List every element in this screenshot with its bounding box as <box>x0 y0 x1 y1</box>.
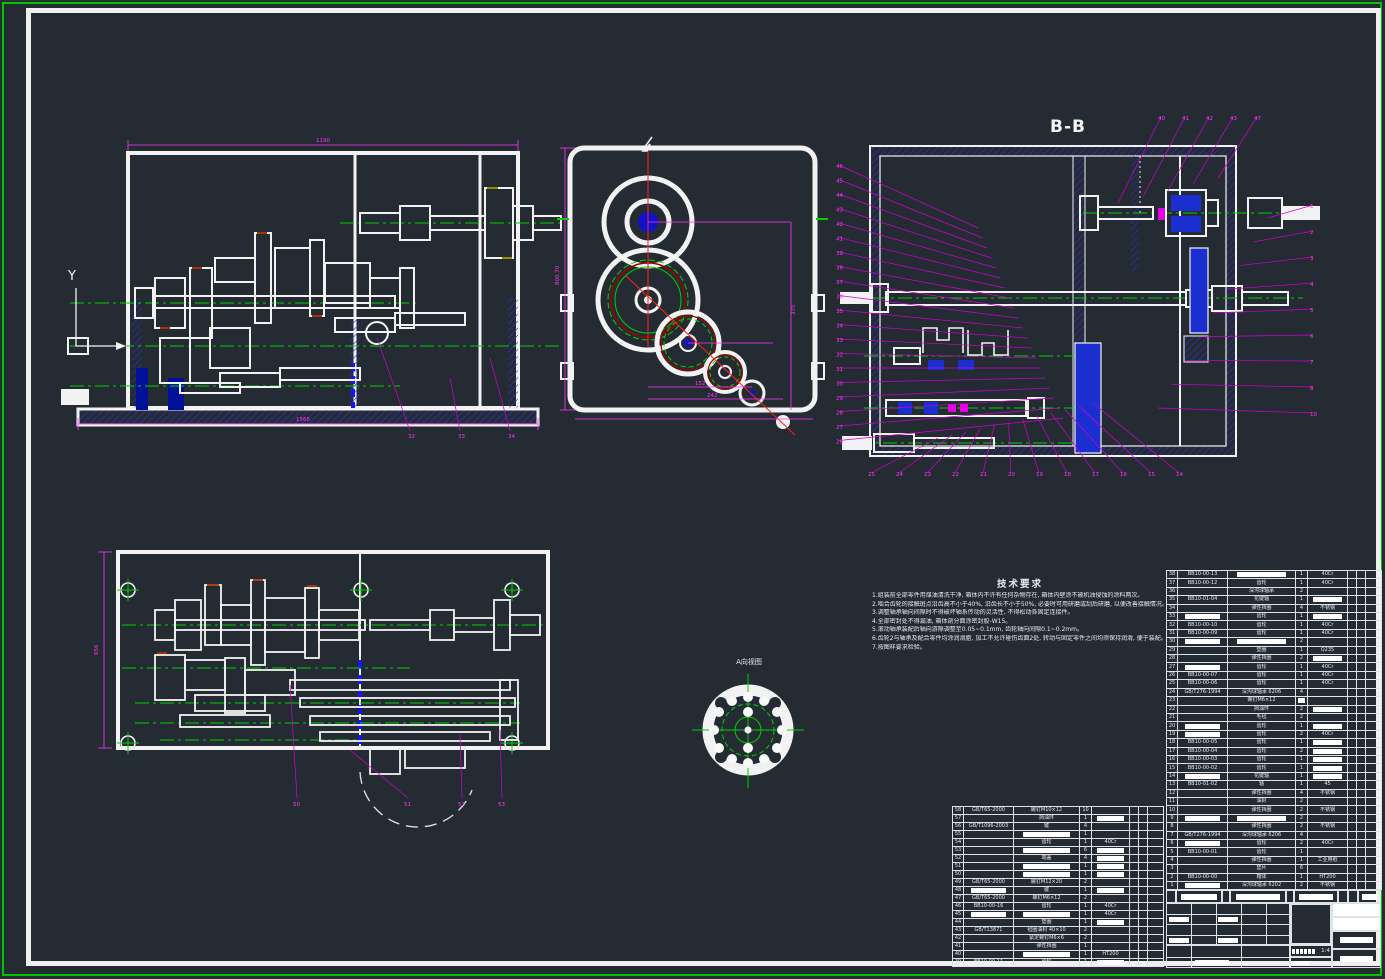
bom-material-cell <box>1308 638 1348 646</box>
bom-extra-cell <box>1130 943 1139 951</box>
dim-label: 1565 <box>296 417 310 423</box>
bom-name-cell <box>1014 831 1080 839</box>
bom-extra-cell <box>1357 571 1366 579</box>
bom-extra-cell <box>1148 943 1164 951</box>
bom-seq-cell: 12 <box>1167 790 1178 798</box>
bom-extra-cell <box>1139 863 1148 871</box>
bom-code-cell <box>1178 706 1228 714</box>
bom-extra-cell <box>1348 689 1357 697</box>
bom-extra-cell <box>1348 706 1357 714</box>
callout-label: 26 <box>836 440 843 446</box>
bom-extra-cell <box>1130 911 1139 919</box>
bom-extra-cell <box>1139 855 1148 863</box>
bom-name-cell <box>1014 871 1080 879</box>
mid-shaft-parts <box>840 248 1288 453</box>
bom-code-cell <box>1178 790 1228 798</box>
bom-extra-cell <box>1357 680 1366 688</box>
bom-seq-cell: 53 <box>953 847 964 855</box>
bom-name-cell: 油封 <box>1228 798 1296 806</box>
callout-label: 17 <box>1092 472 1099 478</box>
bom-qty-cell: 2 <box>1296 588 1308 596</box>
bom-code-cell <box>1178 722 1228 730</box>
bom-code-cell <box>1178 773 1228 781</box>
bom-seq-cell: 51 <box>953 863 964 871</box>
bom-qty-cell: 2 <box>1296 731 1308 739</box>
bom-extra-cell <box>1139 895 1148 903</box>
bom-extra-cell <box>1130 879 1139 887</box>
bom-qty-cell: 1 <box>1080 951 1092 959</box>
bom-extra-cell <box>1366 815 1382 823</box>
bom-name-cell: 齿轮 <box>1228 848 1296 856</box>
bom-code-cell <box>964 935 1014 943</box>
bom-material-cell <box>1092 935 1130 943</box>
bom-code-cell <box>1178 714 1228 722</box>
bom-material-cell <box>1092 871 1130 879</box>
callout-label: 46 <box>836 164 843 170</box>
bom-extra-cell <box>1366 731 1382 739</box>
bom-extra-cell <box>1148 903 1164 911</box>
callout-label: 27 <box>836 425 843 431</box>
bom-extra-cell <box>1148 855 1164 863</box>
callout-label: 44 <box>836 193 843 199</box>
bom-extra-cell <box>1357 857 1366 865</box>
bom-extra-cell <box>1348 647 1357 655</box>
bom-extra-cell <box>1348 823 1357 831</box>
bom-material-cell <box>1308 689 1348 697</box>
bom-seq-cell: 33 <box>1167 613 1178 621</box>
bom-material-cell <box>1092 879 1130 887</box>
bom-extra-cell <box>1348 672 1357 680</box>
bom-material-cell: 40Cr <box>1308 680 1348 688</box>
bom-extra-cell <box>1366 823 1382 831</box>
bom-seq-cell: 27 <box>1167 663 1178 671</box>
bom-extra-cell <box>1148 871 1164 879</box>
bom-extra-cell <box>1139 807 1148 815</box>
bom-seq-cell: 18 <box>1167 739 1178 747</box>
bom-extra-cell <box>1148 919 1164 927</box>
bom-extra-cell <box>1130 855 1139 863</box>
bom-material-cell <box>1092 823 1130 831</box>
bom-extra-cell <box>1148 927 1164 935</box>
bom-qty-cell: 6 <box>1080 847 1092 855</box>
bom-code-cell: BB10-00-11 <box>964 959 1014 967</box>
bom-extra-cell <box>1357 739 1366 747</box>
leader-line <box>1172 384 1313 387</box>
bom-extra-cell <box>1139 839 1148 847</box>
bom-extra-cell <box>1366 596 1382 604</box>
bom-extra-cell <box>1366 647 1382 655</box>
svg-text:Y: Y <box>67 269 76 284</box>
bom-seq-cell: 19 <box>1167 731 1178 739</box>
bom-extra-cell <box>1348 605 1357 613</box>
bom-seq-cell: 31 <box>1167 630 1178 638</box>
redacted-cell <box>1332 949 1381 968</box>
dim-label: 152 <box>695 381 706 387</box>
bom-extra-cell <box>1366 848 1382 856</box>
bom-name-cell: 齿轮 <box>1228 613 1296 621</box>
bom-seq-cell: 39 <box>953 959 964 967</box>
bom-qty-cell: 2 <box>1296 714 1308 722</box>
bom-extra-cell <box>1357 764 1366 772</box>
bom-seq-cell: 22 <box>1167 706 1178 714</box>
bom-seq-cell: 38 <box>1167 571 1178 579</box>
bom-code-cell <box>1178 815 1228 823</box>
bom-code-cell: BB10-00-13 <box>1178 571 1228 579</box>
bom-seq-cell: 58 <box>953 807 964 815</box>
bom-code-cell <box>1178 647 1228 655</box>
bom-code-cell: BB10-00-06 <box>1178 680 1228 688</box>
bom-seq-cell: 36 <box>1167 588 1178 596</box>
callout-label: 22 <box>952 472 959 478</box>
bom-seq-cell: 47 <box>953 895 964 903</box>
drawing-number-cell <box>1290 903 1332 945</box>
bom-extra-cell <box>1148 935 1164 943</box>
bom-extra-cell <box>1357 579 1366 587</box>
callout-label: 31 <box>836 367 843 373</box>
bom-code-cell: GB/T65-2000 <box>964 879 1014 887</box>
bom-material-cell: 40Cr <box>1308 840 1348 848</box>
bom-name-cell: 毛毡 <box>1228 714 1296 722</box>
bom-qty-cell: 4 <box>1296 832 1308 840</box>
bom-extra-cell <box>1357 806 1366 814</box>
bom-name-cell: 螺钉M6×12 <box>1014 895 1080 903</box>
bom-material-cell: 45 <box>1308 781 1348 789</box>
bom-extra-cell <box>1357 706 1366 714</box>
bom-extra-cell <box>1130 823 1139 831</box>
leader-line <box>1241 257 1314 266</box>
bom-extra-cell <box>1366 748 1382 756</box>
bom-qty-cell: 1 <box>1296 663 1308 671</box>
leader-line <box>839 296 1018 319</box>
bom-extra-cell <box>1357 865 1366 873</box>
bom-name-cell: 齿轮 <box>1228 739 1296 747</box>
bom-extra-cell <box>1130 951 1139 959</box>
bom-extra-cell <box>1366 638 1382 646</box>
bom-extra-cell <box>1348 865 1357 873</box>
title-block: 1:4 <box>1166 890 1381 968</box>
dim-label: 656 <box>94 644 100 655</box>
bom-seq-cell: 21 <box>1167 714 1178 722</box>
bom-extra-cell <box>1148 807 1164 815</box>
bom-extra-cell <box>1130 935 1139 943</box>
bom-name-cell <box>1014 847 1080 855</box>
bom-code-cell: BB10-00-01 <box>1178 848 1228 856</box>
leader-line <box>839 252 1005 288</box>
bom-extra-cell <box>1348 764 1357 772</box>
bom-name-cell: 弹性挡圈 <box>1014 943 1080 951</box>
bom-code-cell <box>964 847 1014 855</box>
bom-qty-cell: 2 <box>1296 706 1308 714</box>
bom-qty-cell <box>1296 697 1308 705</box>
bom-extra-cell <box>1357 663 1366 671</box>
tech-lines: 1.组装前全部零件用煤油清洗干净, 箱体内不许有任何杂物存在, 箱体内壁涂不被机… <box>872 592 1168 652</box>
bom-material-cell: 工业用纸 <box>1308 857 1348 865</box>
bom-code-cell: BB10-01-02 <box>1178 781 1228 789</box>
bom-material-cell: Q235 <box>1308 647 1348 655</box>
bom-extra-cell <box>1348 781 1357 789</box>
bom-name-cell: 齿轮 <box>1228 756 1296 764</box>
bom-code-cell <box>1178 697 1228 705</box>
bom-code-cell <box>1178 865 1228 873</box>
centerlines-red <box>625 147 795 435</box>
redacted-cell <box>1169 938 1189 943</box>
bom-qty-cell: 2 <box>1080 879 1092 887</box>
bom-material-cell <box>1308 848 1348 856</box>
bom-code-cell: GB/T276-1994 <box>1178 832 1228 840</box>
bom-seq-cell: 4 <box>1167 857 1178 865</box>
leader-line <box>1037 416 1067 473</box>
callout-label: 52 <box>458 802 465 808</box>
bom-code-cell <box>1178 605 1228 613</box>
bom-seq-cell: 42 <box>953 935 964 943</box>
bom-qty-cell: 2 <box>1080 895 1092 903</box>
leader-line <box>839 165 978 228</box>
bom-material-cell <box>1092 847 1130 855</box>
bom-code-cell <box>964 855 1014 863</box>
bom-material-cell <box>1308 773 1348 781</box>
callout-label: 43 <box>1230 116 1237 122</box>
bom-extra-cell <box>1357 630 1366 638</box>
bom-extra-cell <box>1348 806 1357 814</box>
bom-name-cell: 齿轮 <box>1228 764 1296 772</box>
bom-material-cell <box>1092 943 1130 951</box>
bom-qty-cell: 1 <box>1080 887 1092 895</box>
bom-extra-cell <box>1139 911 1148 919</box>
bom-qty-cell: 4 <box>1296 689 1308 697</box>
bom-name-cell: 齿轮 <box>1014 839 1080 847</box>
bom-seq-cell: 13 <box>1167 781 1178 789</box>
callout-label: 23 <box>924 472 931 478</box>
bom-extra-cell <box>1357 748 1366 756</box>
callout-label: 24 <box>896 472 903 478</box>
section-label: B-B <box>1050 117 1086 137</box>
bom-material-cell <box>1092 959 1130 967</box>
bom-qty-cell: 1 <box>1296 630 1308 638</box>
bom-code-cell: BB10-00-16 <box>964 903 1014 911</box>
tech-line: 7.按图样要求检验。 <box>872 644 1168 653</box>
bom-code-cell <box>1178 588 1228 596</box>
bom-qty-cell: 2 <box>1296 806 1308 814</box>
bom-name-cell: 弹性挡圈 <box>1228 857 1296 865</box>
bom-extra-cell <box>1357 638 1366 646</box>
bom-code-cell: GB/T65-2000 <box>964 807 1014 815</box>
bom-qty-cell: 2 <box>1080 927 1092 935</box>
bom-extra-cell <box>1130 839 1139 847</box>
bom-table-right: 38BB10-00-13140Cr37BB10-00-12齿轮140Cr36深沟… <box>1166 570 1382 890</box>
bom-extra-cell <box>1130 863 1139 871</box>
bom-name-cell: 螺钉M10×12 <box>1014 807 1080 815</box>
bom-seq-cell: 25 <box>1167 680 1178 688</box>
bom-qty-cell: 1 <box>1296 848 1308 856</box>
callout-label: 32 <box>836 353 843 359</box>
callout-label: 16 <box>1120 472 1127 478</box>
bom-qty-cell: 4 <box>1080 823 1092 831</box>
callout-label: 1 <box>1310 204 1314 210</box>
bom-material-cell <box>1092 887 1130 895</box>
callout-label: 42 <box>1206 116 1213 122</box>
bom-name-cell: 齿轮 <box>1228 672 1296 680</box>
bom-code-cell <box>1178 823 1228 831</box>
tech-line: 5.滚动轴承装配后轴向游隙调整至0.05~0.1mm, 齿轮轴向间隙0.1~0.… <box>872 626 1168 635</box>
bom-extra-cell <box>1357 621 1366 629</box>
bom-seq-cell: 20 <box>1167 722 1178 730</box>
bom-material-cell <box>1092 831 1130 839</box>
bom-extra-cell <box>1357 731 1366 739</box>
bom-extra-cell <box>1357 613 1366 621</box>
bom-material-cell: 40Cr <box>1308 621 1348 629</box>
bom-seq-cell: 56 <box>953 823 964 831</box>
bom-extra-cell <box>1357 714 1366 722</box>
bom-seq-cell: 26 <box>1167 672 1178 680</box>
tech-line: 4.全部密封处不得漏油, 箱体剖分面涂密封胶-W15。 <box>872 618 1168 627</box>
bom-qty-cell: 1 <box>1296 571 1308 579</box>
bom-name-cell: 弹性挡圈 <box>1228 790 1296 798</box>
callout-label: 38 <box>836 266 843 272</box>
dim-label: 375 <box>791 304 797 315</box>
bom-extra-cell <box>1366 874 1382 882</box>
bom-qty-cell: 2 <box>1296 823 1308 831</box>
bom-extra-cell <box>1366 571 1382 579</box>
technical-requirements: 技术要求 1.组装前全部零件用煤油清洗干净, 箱体内不许有任何杂物存在, 箱体内… <box>872 576 1168 652</box>
bom-qty-cell: 1 <box>1296 647 1308 655</box>
bom-extra-cell <box>1357 697 1366 705</box>
callout-label: 53 <box>498 802 505 808</box>
bom-code-cell <box>964 831 1014 839</box>
bom-qty-cell: 1 <box>1080 863 1092 871</box>
bom-seq-cell: 8 <box>1167 823 1178 831</box>
rotation-arc <box>360 772 472 827</box>
dimension-left <box>98 552 112 748</box>
bom-qty-cell: 4 <box>1296 605 1308 613</box>
bom-code-cell <box>964 919 1014 927</box>
bom-qty-cell: 1 <box>1296 613 1308 621</box>
bom-code-cell <box>1178 663 1228 671</box>
leader-line <box>839 310 1023 328</box>
bom-name-cell: 螺钉M6×12 <box>1228 697 1296 705</box>
bom-material-cell <box>1308 706 1348 714</box>
bom-code-cell: GB/T276-1994 <box>1178 689 1228 697</box>
bom-extra-cell <box>1366 840 1382 848</box>
bom-extra-cell <box>1357 874 1366 882</box>
bom-extra-cell <box>1148 887 1164 895</box>
leader-line <box>1118 117 1161 203</box>
callout-label: 28 <box>836 411 843 417</box>
scale-value: 1:4 <box>1321 946 1330 956</box>
bom-seq-cell: 34 <box>1167 605 1178 613</box>
bom-extra-cell <box>1348 848 1357 856</box>
bom-extra-cell <box>1139 903 1148 911</box>
redacted-cell <box>1230 890 1286 903</box>
bom-material-cell <box>1092 927 1130 935</box>
bom-extra-cell <box>1357 647 1366 655</box>
bom-code-cell <box>1178 840 1228 848</box>
callout-label: 25 <box>868 472 875 478</box>
bom-name-cell: 键 <box>1014 823 1080 831</box>
bom-extra-cell <box>1357 605 1366 613</box>
callout-label: 35 <box>836 309 843 315</box>
bom-extra-cell <box>1366 857 1382 865</box>
bom-seq-cell: 44 <box>953 919 964 927</box>
bom-qty-cell: 2 <box>1296 798 1308 806</box>
bom-extra-cell <box>1366 588 1382 596</box>
bom-name-cell <box>1228 638 1296 646</box>
bom-material-cell <box>1308 756 1348 764</box>
callout-label: 30 <box>836 382 843 388</box>
bom-extra-cell <box>1366 832 1382 840</box>
bom-qty-cell: 1 <box>1080 943 1092 951</box>
bom-material-cell <box>1092 815 1130 823</box>
bom-qty-cell: 1 <box>1296 722 1308 730</box>
tech-line: 3.调整轴承轴向间隙时不得破坏轴系传动的灵活性, 不得松动各固定连接件。 <box>872 609 1168 618</box>
bom-extra-cell <box>1348 790 1357 798</box>
bom-name-cell: 垫片 <box>1228 865 1296 873</box>
bom-name-cell <box>1228 571 1296 579</box>
bom-extra-cell <box>1130 959 1139 967</box>
bom-seq-cell: 24 <box>1167 689 1178 697</box>
bom-seq-cell: 14 <box>1167 773 1178 781</box>
bom-extra-cell <box>1366 798 1382 806</box>
bom-material-cell <box>1308 815 1348 823</box>
bom-extra-cell <box>1148 847 1164 855</box>
bom-name-cell: 紧定螺钉M6×6 <box>1014 935 1080 943</box>
bom-name-cell: 轴 <box>1228 781 1296 789</box>
callout-label: 41 <box>836 237 843 243</box>
bom-extra-cell <box>1357 596 1366 604</box>
bom-extra-cell <box>1148 823 1164 831</box>
callout-label: 4 <box>1310 282 1314 288</box>
bom-material-cell: 40Cr <box>1308 571 1348 579</box>
bom-extra-cell <box>1348 714 1357 722</box>
bom-extra-cell <box>1348 756 1357 764</box>
side-gear-view: 152 242 800.70 375 <box>555 135 835 430</box>
bom-extra-cell <box>1357 722 1366 730</box>
bom-name-cell: 端盖 <box>1014 855 1080 863</box>
front-section-view: 1190 <box>60 128 565 458</box>
bom-extra-cell <box>1139 847 1148 855</box>
bom-extra-cell <box>1348 588 1357 596</box>
bom-extra-cell <box>1148 911 1164 919</box>
bom-name-cell: 挡油环 <box>1228 706 1296 714</box>
bom-code-cell <box>1178 638 1228 646</box>
bom-seq-cell: 45 <box>953 911 964 919</box>
bom-seq-cell: 30 <box>1167 638 1178 646</box>
bom-extra-cell <box>1130 887 1139 895</box>
bom-name-cell: 螺钉M12×20 <box>1014 879 1080 887</box>
bom-name-cell <box>1014 951 1080 959</box>
bom-extra-cell <box>1357 756 1366 764</box>
bom-extra-cell <box>1348 596 1357 604</box>
centerlines <box>70 223 560 386</box>
bom-extra-cell <box>1348 722 1357 730</box>
bom-extra-cell <box>1130 895 1139 903</box>
redacted-cell <box>1332 917 1381 931</box>
bom-material-cell: 40Cr <box>1308 672 1348 680</box>
bom-name-cell: 齿轮 <box>1228 840 1296 848</box>
bom-material-cell: 不锈钢 <box>1308 823 1348 831</box>
bom-extra-cell <box>1139 823 1148 831</box>
bom-seq-cell: 40 <box>953 951 964 959</box>
bom-qty-cell: 1 <box>1296 764 1308 772</box>
bom-name-cell <box>1014 911 1080 919</box>
leader-line <box>839 223 996 268</box>
bom-extra-cell <box>1139 831 1148 839</box>
bom-extra-cell <box>1357 773 1366 781</box>
callout-label: 19 <box>1036 472 1043 478</box>
bom-extra-cell <box>1348 798 1357 806</box>
bom-qty-cell: 1 <box>1080 911 1092 919</box>
callout-label: 3 <box>1310 256 1314 262</box>
tech-title: 技术要求 <box>872 576 1168 590</box>
